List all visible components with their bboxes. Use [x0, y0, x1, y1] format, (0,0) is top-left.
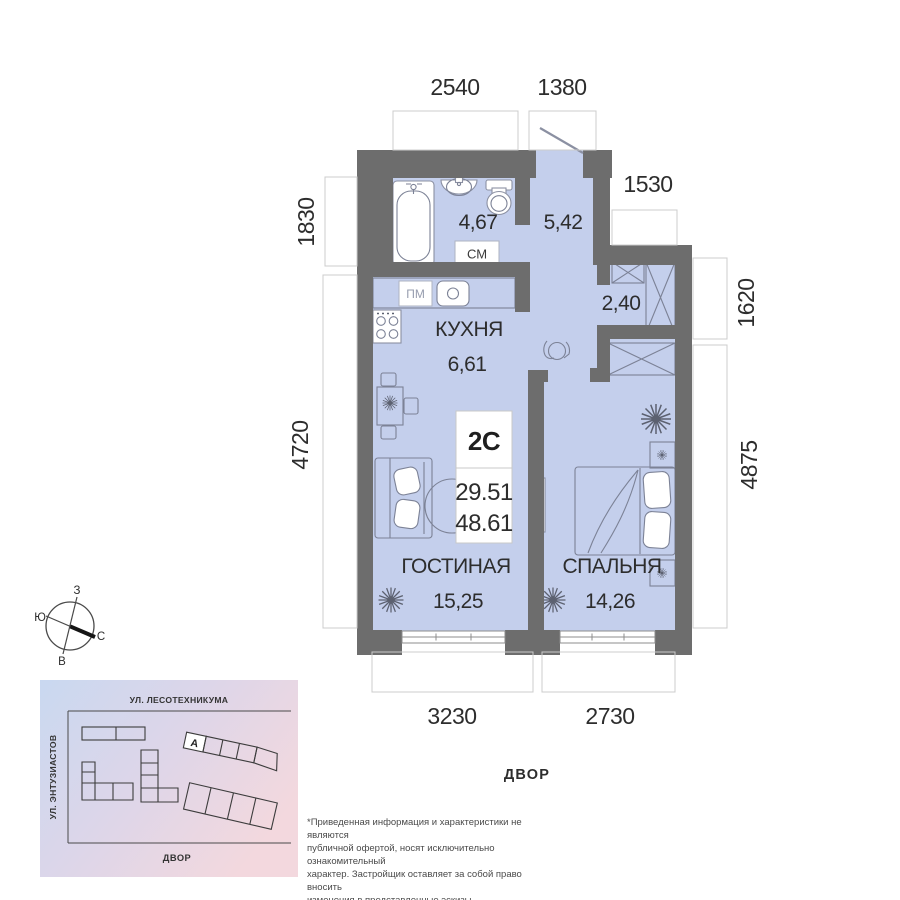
wardrobe-area-label: 2,40	[602, 292, 641, 315]
sitemap-street-left-label: УЛ. ЭНТУЗИАСТОВ	[48, 735, 58, 820]
bedroom-name-label: СПАЛЬНЯ	[562, 555, 661, 578]
compass-south-label: Ю	[34, 612, 46, 624]
dim-top-right: 1380	[537, 74, 586, 100]
plan-svg: 2С 29.51 48.61 4,67 5,42 2,40 КУХНЯ 6,61…	[0, 0, 900, 900]
dim-top-left: 2540	[430, 74, 479, 100]
living-name-label: ГОСТИНАЯ	[401, 555, 510, 578]
dim-right-mid: 1620	[733, 278, 759, 327]
window	[560, 631, 655, 643]
bedroom-area-label: 14,26	[585, 590, 635, 613]
compass-west-label: З	[74, 585, 81, 597]
total-area-value: 48.61	[455, 510, 513, 537]
bathroom-area-label: 4,67	[459, 211, 498, 234]
sitemap-yard-label: ДВОР	[163, 853, 192, 863]
plant-icon	[541, 588, 566, 613]
kitchen-name-label: КУХНЯ	[435, 318, 503, 341]
compass-east-label: В	[58, 656, 66, 668]
dim-right-bottom: 4875	[736, 440, 762, 489]
plant-icon	[379, 588, 404, 613]
bathtub-icon	[393, 181, 434, 265]
window	[402, 631, 505, 643]
stove-icon	[373, 310, 401, 343]
disclaimer-text: *Приведенная информация и характеристики…	[307, 816, 547, 900]
dim-bottom-left: 3230	[427, 703, 476, 729]
entrance-door	[540, 128, 583, 153]
dim-left-bottom: 4720	[287, 420, 313, 469]
living-area-value: 29.51	[455, 479, 513, 506]
living-area-label: 15,25	[433, 590, 483, 613]
dim-bottom-right: 2730	[585, 703, 634, 729]
dim-right-top: 1530	[623, 171, 672, 197]
kitchen-sink-icon	[437, 281, 469, 306]
apartment-info-box: 2С 29.51 48.61	[455, 411, 513, 543]
site-map-panel	[40, 680, 298, 877]
dim-left-top: 1830	[293, 197, 319, 246]
kitchen-area-label: 6,61	[448, 353, 487, 376]
compass: З Ю С В	[34, 585, 105, 668]
dishwasher-label: ПМ	[406, 287, 425, 301]
yard-label: ДВОР	[504, 767, 550, 783]
sitemap-street-top-label: УЛ. ЛЕСОТЕХНИКУМА	[130, 695, 229, 705]
compass-north-label: С	[97, 631, 105, 643]
washing-machine-label: СМ	[467, 247, 487, 262]
toilet-icon	[486, 180, 512, 215]
apartment-type-label: 2С	[468, 426, 501, 456]
site-map: УЛ. ЛЕСОТЕХНИКУМА УЛ. ЭНТУЗИАСТОВ ДВОР А	[40, 680, 298, 877]
plant-icon	[641, 404, 671, 434]
floor-plan-page: 2С 29.51 48.61 4,67 5,42 2,40 КУХНЯ 6,61…	[0, 0, 900, 900]
hall-area-label: 5,42	[544, 211, 583, 234]
